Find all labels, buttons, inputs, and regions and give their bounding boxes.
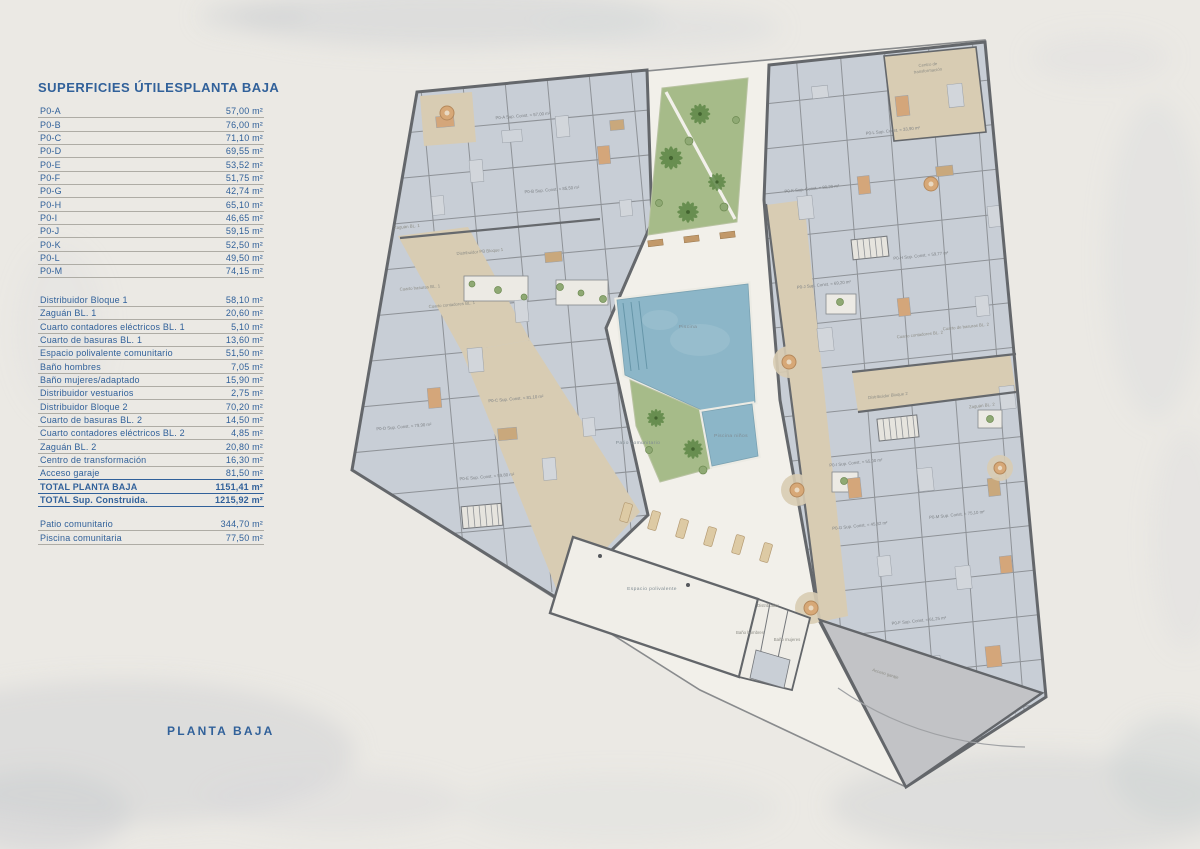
area-row-value: 1151,41 m² [215,482,263,492]
area-row: P0-E53,52 m² [38,158,264,171]
area-row-value: 13,60 m² [226,335,263,345]
area-row-label: Centro de transformación [40,455,146,465]
area-row-value: 77,50 m² [226,533,263,543]
area-row: Baño hombres7,05 m² [38,360,264,373]
area-row-value: 2,75 m² [231,388,263,398]
area-row-value: 65,10 m² [226,200,263,210]
area-row-value: 59,15 m² [226,226,263,236]
area-row: TOTAL Sup. Construida.1215,92 m² [38,494,264,507]
area-row-label: TOTAL PLANTA BAJA [40,482,137,492]
area-row: Zaguán BL. 120,60 m² [38,307,264,320]
area-row-value: 14,50 m² [226,415,263,425]
area-row-label: P0-E [40,160,61,170]
area-row-value: 46,65 m² [226,213,263,223]
area-row: Espacio polivalente comunitario51,50 m² [38,347,264,360]
area-row-label: P0-C [40,133,61,143]
area-row-label: Cuarto contadores eléctricos BL. 1 [40,322,185,332]
area-row-label: P0-H [40,200,61,210]
area-row: Cuarto contadores eléctricos BL. 24,85 m… [38,427,264,440]
area-row: Distribuidor vestuarios2,75 m² [38,387,264,400]
area-row-value: 57,00 m² [226,106,263,116]
floor-name-label: PLANTA BAJA [167,724,275,738]
area-row: P0-G42,74 m² [38,185,264,198]
area-row-value: 52,50 m² [226,240,263,250]
table-title: SUPERFICIES ÚTILES [38,80,184,95]
area-row-value: 69,55 m² [226,146,263,156]
area-row-value: 76,00 m² [226,120,263,130]
area-row: Cuarto contadores eléctricos BL. 15,10 m… [38,320,264,333]
area-row-value: 70,20 m² [226,402,263,412]
area-row: Acceso garaje81,50 m² [38,467,264,480]
area-row: Centro de transformación16,30 m² [38,454,264,467]
area-row-label: P0-D [40,146,61,156]
area-row-value: 51,50 m² [226,348,263,358]
plan-label: Piscina [679,324,698,330]
areas-section-2: Distribuidor Bloque 158,10 m²Zaguán BL. … [38,293,264,507]
area-row: P0-F51,75 m² [38,172,264,185]
area-row: Patio comunitario344,70 m² [38,518,264,531]
area-row-value: 53,52 m² [226,160,263,170]
plan-label: Baño mujeres [774,637,801,642]
area-row-value: 15,90 m² [226,375,263,385]
area-row-value: 42,74 m² [226,186,263,196]
area-row-label: TOTAL Sup. Construida. [40,495,148,505]
area-row-value: 7,05 m² [231,362,263,372]
table-header: SUPERFICIES ÚTILES PLANTA BAJA [38,80,264,95]
area-row-label: Distribuidor Bloque 1 [40,295,128,305]
plan-label: Piscina niños [714,433,748,439]
plan-label: Espacio polivalente [627,586,677,592]
area-row: Distribuidor Bloque 158,10 m² [38,293,264,306]
area-row: P0-C71,10 m² [38,132,264,145]
area-row-label: Baño mujeres/adaptado [40,375,140,385]
area-row-label: Cuarto contadores eléctricos BL. 2 [40,428,185,438]
area-row-label: Espacio polivalente comunitario [40,348,173,358]
area-row-value: 344,70 m² [221,519,263,529]
area-row-label: P0-M [40,266,62,276]
area-row-label: P0-A [40,106,61,116]
area-row: P0-A57,00 m² [38,105,264,118]
area-row-value: 58,10 m² [226,295,263,305]
plan-sheet: P0-A Sup. Const. = 57,00 m²P0-B Sup. Con… [0,0,1200,849]
area-row-label: P0-G [40,186,62,196]
area-row-label: Acceso garaje [40,468,100,478]
area-row-label: P0-J [40,226,59,236]
area-row-value: 74,15 m² [226,266,263,276]
plan-label: Baño hombres [736,630,764,635]
area-row-value: 81,50 m² [226,468,263,478]
area-row-label: P0-I [40,213,57,223]
area-row: P0-M74,15 m² [38,265,264,278]
area-row-label: Distribuidor Bloque 2 [40,402,128,412]
area-row: Piscina comunitaria77,50 m² [38,531,264,544]
area-row: P0-K52,50 m² [38,238,264,251]
area-row: P0-I46,65 m² [38,212,264,225]
area-row-value: 20,80 m² [226,442,263,452]
area-row: P0-L49,50 m² [38,252,264,265]
area-row: P0-H65,10 m² [38,198,264,211]
areas-table-panel: SUPERFICIES ÚTILES PLANTA BAJA P0-A57,00… [38,80,264,545]
area-row: Baño mujeres/adaptado15,90 m² [38,374,264,387]
area-row-value: 1215,92 m² [215,495,263,505]
areas-section-1: P0-A57,00 m²P0-B76,00 m²P0-C71,10 m²P0-D… [38,105,264,278]
area-row-label: P0-K [40,240,61,250]
area-row-value: 49,50 m² [226,253,263,263]
area-row: P0-J59,15 m² [38,225,264,238]
area-row: Cuarto de basuras BL. 113,60 m² [38,334,264,347]
area-row-label: Piscina comunitaria [40,533,122,543]
area-row: Cuarto de basuras BL. 214,50 m² [38,414,264,427]
area-row-value: 5,10 m² [231,322,263,332]
areas-section-3: Patio comunitario344,70 m²Piscina comuni… [38,518,264,545]
area-row-label: Zaguán BL. 2 [40,442,96,452]
area-row-value: 20,60 m² [226,308,263,318]
areas-sections: P0-A57,00 m²P0-B76,00 m²P0-C71,10 m²P0-D… [38,105,264,545]
plan-label: Distribuidor [757,603,779,608]
area-row-label: P0-L [40,253,60,263]
garden [648,78,748,247]
area-row-label: P0-B [40,120,61,130]
plan-label: Patio comunitario [616,440,661,446]
area-row-label: Distribuidor vestuarios [40,388,134,398]
area-row: P0-D69,55 m² [38,145,264,158]
area-row: P0-B76,00 m² [38,118,264,131]
area-row: Distribuidor Bloque 270,20 m² [38,400,264,413]
area-row-label: Cuarto de basuras BL. 1 [40,335,142,345]
area-row-label: Cuarto de basuras BL. 2 [40,415,142,425]
area-row: TOTAL PLANTA BAJA1151,41 m² [38,480,264,493]
area-row-value: 16,30 m² [226,455,263,465]
area-row-label: P0-F [40,173,60,183]
table-subtitle: PLANTA BAJA [184,80,280,95]
area-row-label: Baño hombres [40,362,101,372]
area-row-value: 51,75 m² [226,173,263,183]
area-row-label: Patio comunitario [40,519,113,529]
area-row-label: Zaguán BL. 1 [40,308,96,318]
area-row: Zaguán BL. 220,80 m² [38,440,264,453]
area-row-value: 71,10 m² [226,133,263,143]
area-row-value: 4,85 m² [231,428,263,438]
